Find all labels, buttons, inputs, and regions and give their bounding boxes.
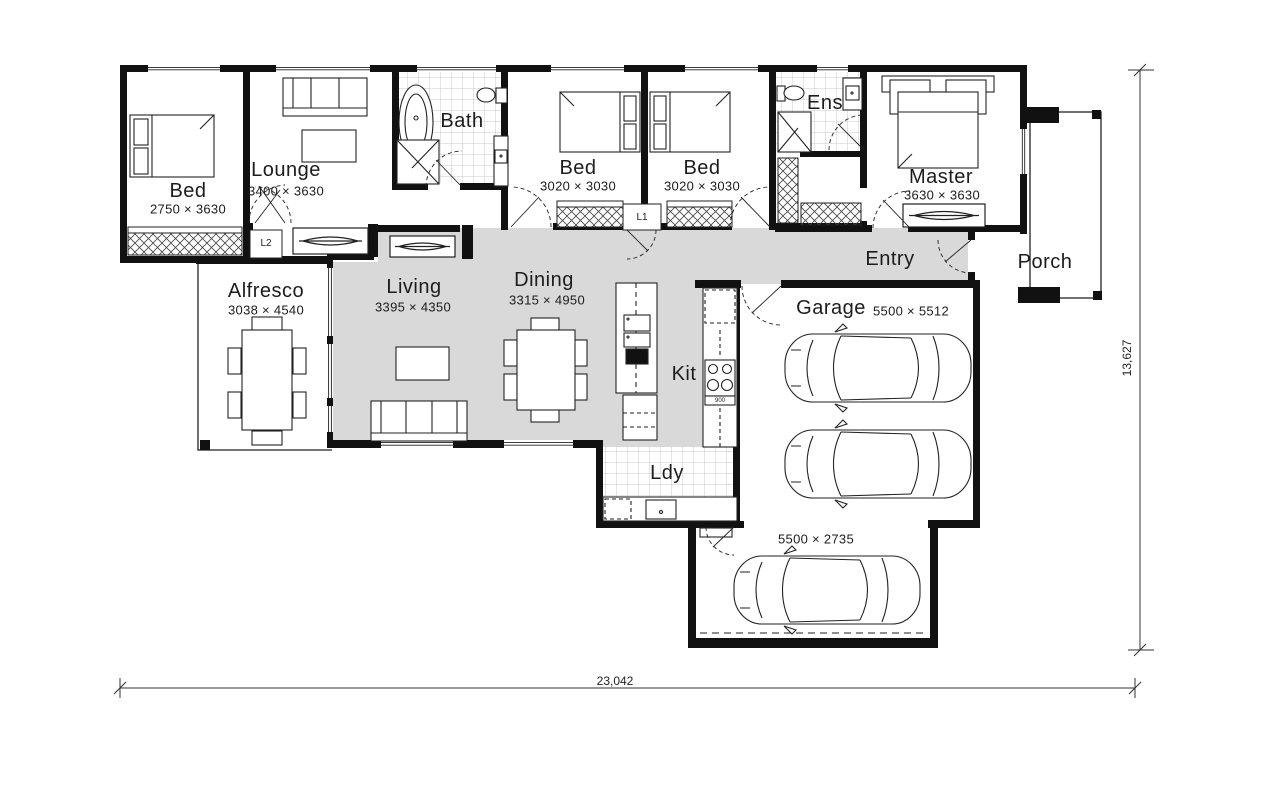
car-garage-2	[785, 420, 971, 508]
kitchen-bench-lower	[623, 395, 657, 440]
ens-shower	[778, 112, 811, 152]
room-dims-bed3: 3020 × 3030	[664, 180, 740, 193]
room-label-garage: Garage	[796, 298, 866, 318]
porch-structure	[1018, 107, 1102, 303]
car-garage-1	[785, 324, 971, 412]
floor-plan-canvas: Bed 2750 × 3630 Lounge 3400 × 3630 Bath …	[0, 0, 1276, 794]
cooktop-size-label: 900	[715, 398, 725, 404]
ens-vanity	[843, 78, 862, 110]
ens-toilet	[777, 86, 804, 101]
car-carport	[734, 546, 920, 634]
window-alfresco-slider	[327, 266, 333, 432]
bed-master	[882, 76, 994, 168]
vanity	[494, 136, 508, 186]
living-console	[390, 236, 455, 257]
window-dining-south-2	[500, 440, 577, 448]
lounge-sofa	[283, 78, 367, 116]
window-bed1	[144, 65, 224, 72]
window-lounge	[272, 65, 374, 72]
washer-space	[605, 499, 631, 519]
room-label-kit: Kit	[672, 364, 697, 384]
room-label-living: Living	[386, 277, 441, 297]
master-dresser	[903, 204, 985, 227]
room-label-lounge: Lounge	[251, 160, 321, 180]
robe-bed3	[667, 201, 732, 227]
living-sofa	[371, 401, 467, 441]
room-label-master: Master	[909, 167, 973, 187]
room-dims-lounge: 3400 × 3630	[248, 185, 324, 198]
room-dims-master: 3630 × 3630	[904, 189, 980, 202]
room-label-entry: Entry	[865, 249, 914, 269]
room-dims-bed2: 3020 × 3030	[540, 180, 616, 193]
laundry-step	[700, 528, 732, 537]
robe-bed2	[557, 201, 623, 227]
window-ens	[813, 65, 852, 72]
room-label-porch: Porch	[1018, 252, 1073, 272]
overall-width-dimension: 23,042	[597, 675, 634, 687]
fridge-space	[705, 290, 735, 323]
room-label-ldy: Ldy	[650, 463, 684, 483]
hall-console	[293, 228, 368, 254]
robe-bed1	[128, 227, 242, 255]
room-dims-garage: 5500 × 5512	[873, 305, 949, 318]
room-dims-bed1: 2750 × 3630	[150, 203, 226, 216]
laundry	[603, 497, 737, 537]
room-dims-living: 3395 × 4350	[375, 301, 451, 314]
living-coffee-table	[396, 347, 449, 380]
shower	[397, 140, 439, 184]
room-label-bed2: Bed	[559, 158, 596, 178]
bed-2	[560, 92, 640, 152]
toilet	[477, 88, 507, 103]
window-bed2	[547, 65, 628, 72]
alfresco-table-set	[228, 317, 306, 445]
laundry-sink	[646, 500, 676, 519]
room-label-ens: Ens	[807, 93, 843, 113]
wir-shelves	[778, 158, 861, 225]
room-label-bath: Bath	[440, 111, 483, 131]
room-dims-dining: 3315 × 4950	[509, 294, 585, 307]
dining-table-set	[504, 318, 587, 422]
cupboard-label-l1: L1	[636, 213, 647, 223]
overall-depth-dimension: 13,627	[1121, 340, 1133, 377]
window-bath	[413, 65, 500, 72]
bed-3	[650, 92, 730, 152]
room-dims-carport: 5500 × 2735	[778, 533, 854, 546]
lounge-coffee-table	[302, 130, 356, 162]
bed-1	[130, 115, 214, 177]
room-dims-alfresco: 3038 × 4540	[228, 304, 304, 317]
window-bed3	[681, 65, 762, 72]
room-label-alfresco: Alfresco	[228, 281, 304, 301]
floor-plan-drawing	[0, 0, 1276, 794]
room-label-dining: Dining	[514, 270, 574, 290]
room-label-bed1: Bed	[169, 181, 206, 201]
window-master-east	[1020, 125, 1027, 178]
door-garage	[742, 286, 781, 325]
room-label-bed3: Bed	[683, 158, 720, 178]
cupboard-label-l2: L2	[260, 239, 271, 249]
kitchen-island	[616, 283, 657, 393]
